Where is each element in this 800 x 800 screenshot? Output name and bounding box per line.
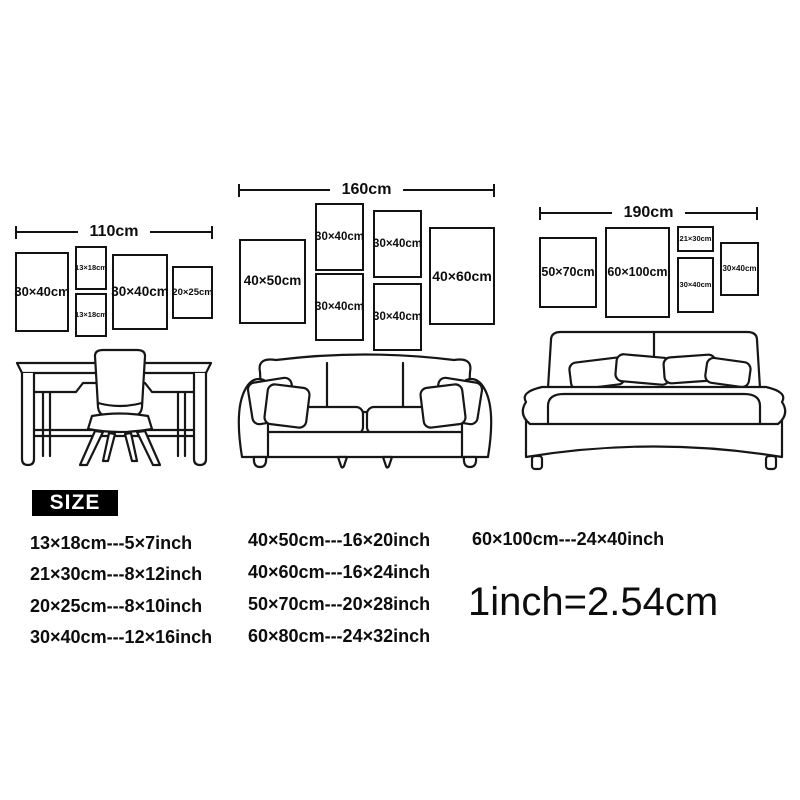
dimension-end-tick xyxy=(211,226,213,239)
frame-size-label: 13×18cm xyxy=(75,311,107,319)
frame-21x30: 21×30cm xyxy=(677,226,714,252)
frame-60x100: 60×100cm xyxy=(605,227,670,318)
frame-size-label: 60×100cm xyxy=(607,266,667,279)
sofa-icon xyxy=(220,348,510,470)
frame-13x18: 13×18cm xyxy=(75,293,107,337)
size-conversion-item: 40×50cm---16×20inch xyxy=(248,530,430,551)
frame-30x40: 30×40cm xyxy=(315,203,364,271)
frame-size-label: 30×40cm xyxy=(722,265,756,273)
wall-width-dimension-190cm: 190cm xyxy=(539,205,758,221)
frame-size-label: 30×40cm xyxy=(14,285,69,299)
wall-width-dimension-110cm: 110cm xyxy=(15,224,213,240)
dimension-end-tick xyxy=(756,207,758,220)
wall-width-label: 160cm xyxy=(330,182,404,198)
frame-size-label: 30×40cm xyxy=(680,281,712,289)
dimension-line xyxy=(403,189,493,191)
size-conversion-item: 50×70cm---20×28inch xyxy=(248,594,430,615)
dimension-line xyxy=(685,212,756,214)
frame-size-label: 40×50cm xyxy=(244,274,301,288)
size-conversion-item: 20×25cm---8×10inch xyxy=(30,596,202,617)
size-conversion-item: 21×30cm---8×12inch xyxy=(30,564,202,585)
size-conversion-item: 13×18cm---5×7inch xyxy=(30,533,192,554)
frame-50x70: 50×70cm xyxy=(539,237,597,308)
frame-30x40: 30×40cm xyxy=(373,283,422,351)
frame-40x50: 40×50cm xyxy=(239,239,306,324)
desk-with-chair-icon xyxy=(12,348,216,470)
frame-30x40: 30×40cm xyxy=(112,254,168,330)
wall-width-label: 190cm xyxy=(612,205,686,221)
dimension-line xyxy=(240,189,330,191)
inch-cm-conversion-note: 1inch=2.54cm xyxy=(468,580,718,625)
frame-40x60: 40×60cm xyxy=(429,227,495,325)
frame-size-label: 30×40cm xyxy=(373,238,422,250)
dimension-end-tick xyxy=(493,184,495,197)
frame-size-label: 20×25cm xyxy=(172,288,212,298)
frame-30x40: 30×40cm xyxy=(373,210,422,278)
frame-30x40: 30×40cm xyxy=(315,273,364,341)
wall-width-dimension-160cm: 160cm xyxy=(238,182,495,198)
size-conversion-item: 40×60cm---16×24inch xyxy=(248,562,430,583)
dimension-line xyxy=(541,212,612,214)
frame-size-label: 50×70cm xyxy=(541,266,594,279)
size-conversion-item: 60×80cm---24×32inch xyxy=(248,626,430,647)
frame-size-label: 30×40cm xyxy=(315,301,364,313)
frame-30x40: 30×40cm xyxy=(720,242,759,296)
frame-size-label: 21×30cm xyxy=(680,235,712,243)
size-guide-infographic: 110cm 30×40cm 13×18cm 13×18cm 30×40cm 20… xyxy=(0,0,800,800)
dimension-line xyxy=(17,231,78,233)
dimension-line xyxy=(150,231,211,233)
frame-size-label: 13×18cm xyxy=(75,264,107,272)
frame-20x25: 20×25cm xyxy=(172,266,213,319)
size-heading: SIZE xyxy=(32,490,118,516)
frame-size-label: 30×40cm xyxy=(373,311,422,323)
size-conversion-item: 30×40cm---12×16inch xyxy=(30,627,212,648)
frame-30x40: 30×40cm xyxy=(15,252,69,332)
wall-width-label: 110cm xyxy=(78,224,151,240)
frame-30x40: 30×40cm xyxy=(677,257,714,313)
frame-size-label: 40×60cm xyxy=(432,269,492,284)
frame-size-label: 30×40cm xyxy=(111,285,168,299)
frame-13x18: 13×18cm xyxy=(75,246,107,290)
size-conversion-item: 60×100cm---24×40inch xyxy=(472,529,664,550)
bed-icon xyxy=(514,330,794,472)
frame-size-label: 30×40cm xyxy=(315,231,364,243)
